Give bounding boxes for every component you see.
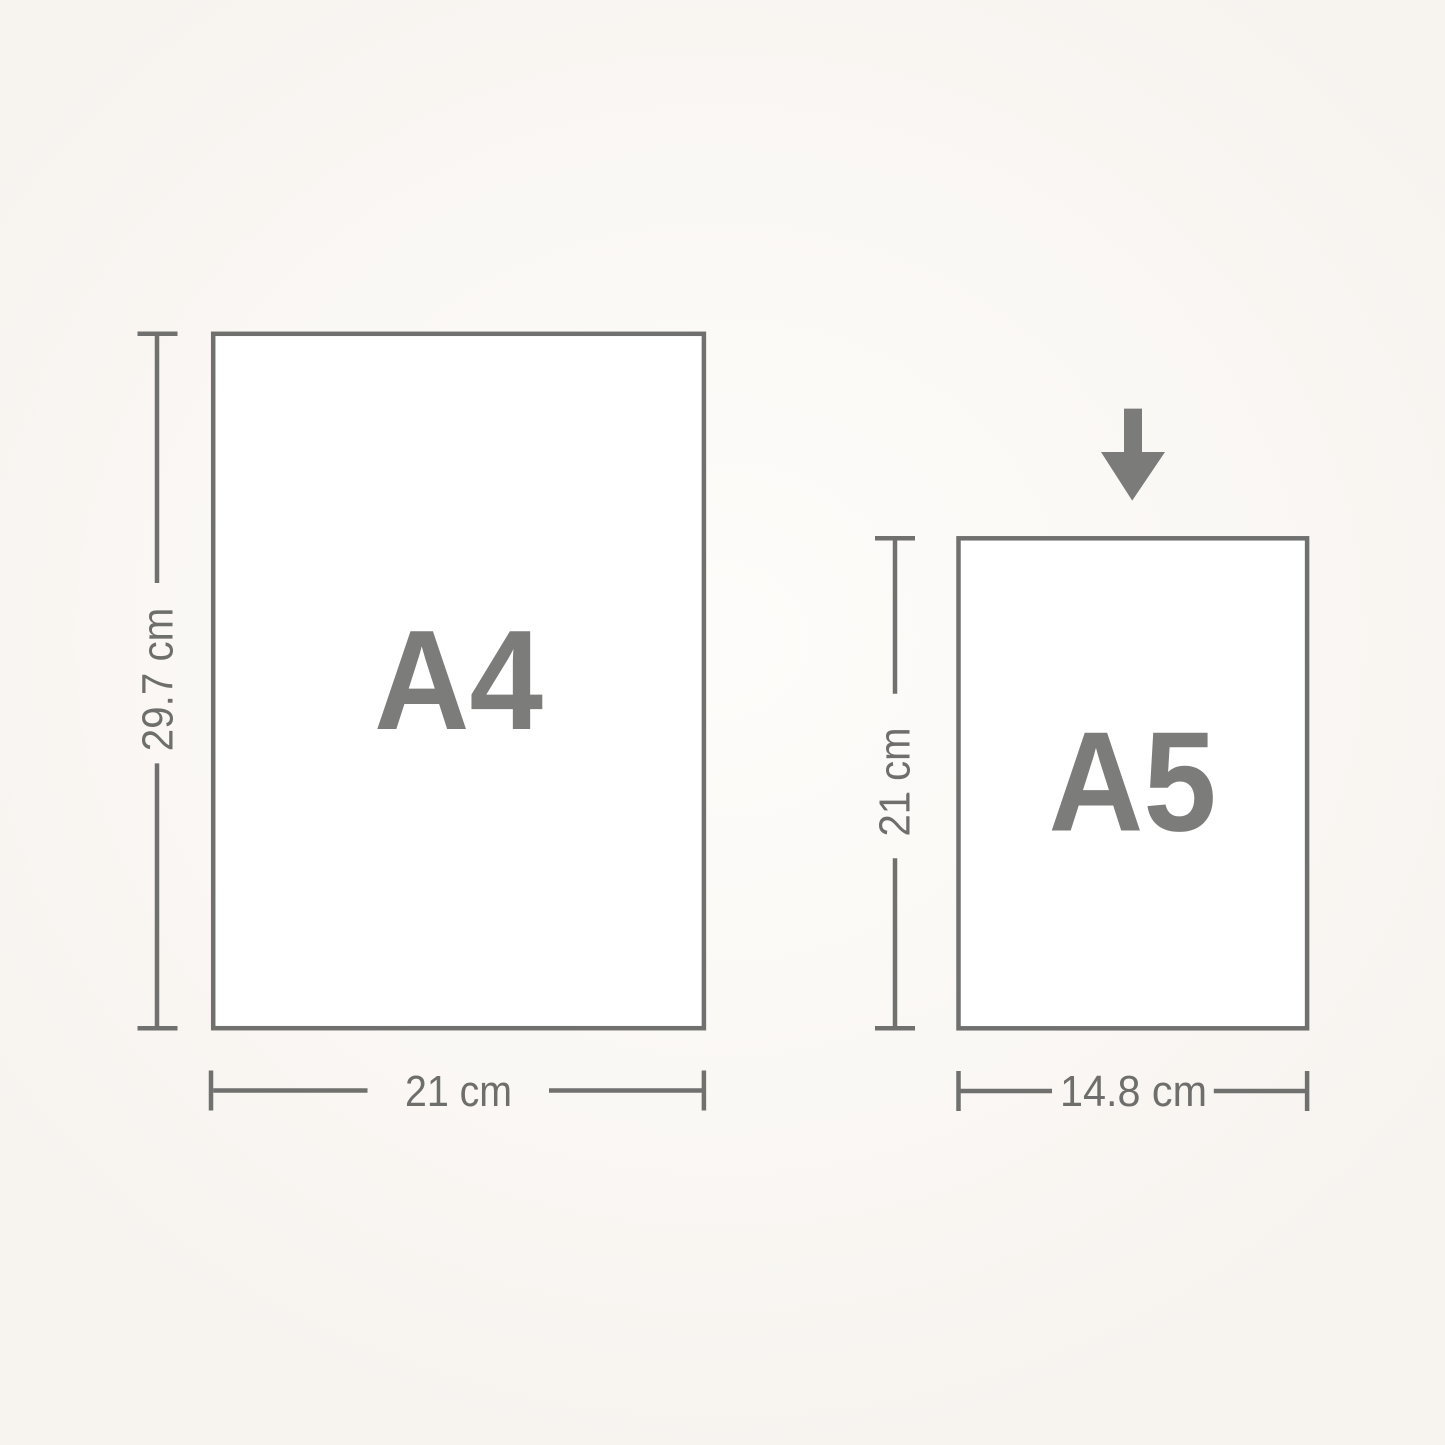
- svg-text:A5: A5: [1049, 703, 1217, 862]
- svg-text:29.7 cm: 29.7 cm: [133, 608, 182, 752]
- svg-text:14.8 cm: 14.8 cm: [1060, 1067, 1207, 1116]
- svg-text:21 cm: 21 cm: [871, 728, 920, 837]
- svg-text:A4: A4: [374, 601, 543, 760]
- svg-text:21 cm: 21 cm: [405, 1067, 512, 1116]
